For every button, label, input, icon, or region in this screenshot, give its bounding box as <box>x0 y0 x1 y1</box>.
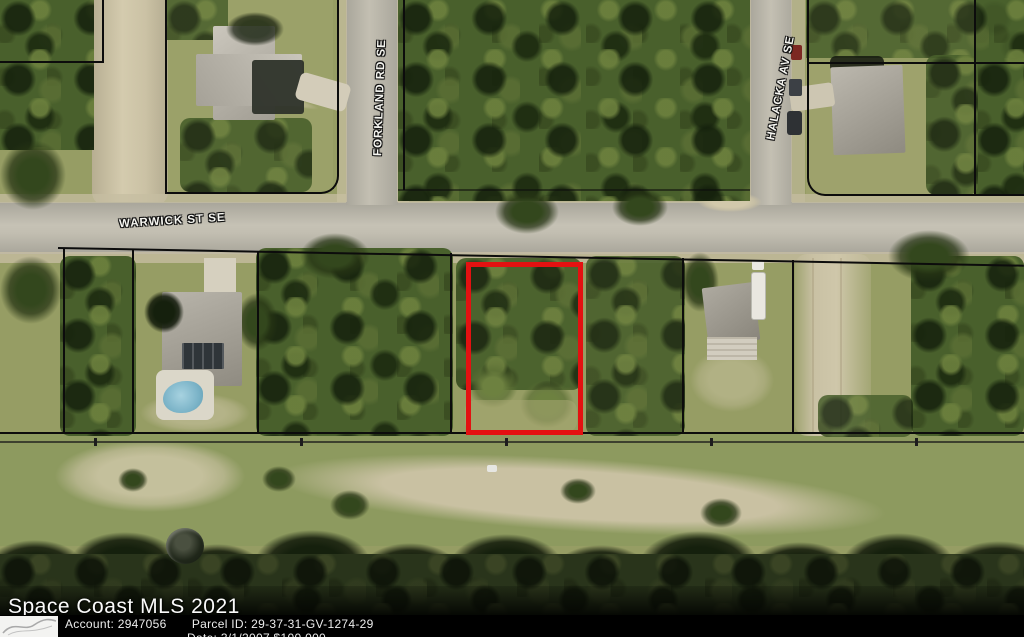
bush <box>262 466 296 492</box>
signature-logo <box>0 616 58 637</box>
tree-cluster <box>300 233 370 279</box>
subject-parcel-highlight <box>466 262 583 435</box>
account-label: Account: <box>65 617 114 631</box>
parcel-boundary-line <box>974 0 976 194</box>
bush <box>560 478 596 504</box>
parcel-boundary-line <box>0 61 103 63</box>
bush <box>330 490 370 520</box>
parked-car <box>787 111 802 135</box>
power-pole <box>94 438 97 446</box>
solar-panels <box>182 343 224 369</box>
driveway <box>204 258 236 294</box>
bush <box>700 498 742 528</box>
road-forkland-rd <box>346 0 398 205</box>
parcel-boundary-line <box>807 62 1024 64</box>
parcel-boundary <box>165 0 339 194</box>
tree-canopy <box>256 248 453 436</box>
tree-canopy <box>0 0 94 150</box>
tree-cluster <box>612 188 668 226</box>
signature-squiggle <box>0 616 58 637</box>
info-bar: Account: 2947056 Parcel ID: 29-37-31-GV-… <box>0 615 1024 637</box>
power-pole <box>300 438 303 446</box>
patio <box>707 337 757 360</box>
tree-cluster <box>888 230 970 282</box>
tree-canopy <box>911 256 1024 436</box>
parcel-boundary-line <box>63 249 65 434</box>
parcel-boundary-line <box>398 189 750 191</box>
parcel-boundary-line <box>132 249 134 434</box>
bush <box>118 468 148 492</box>
aerial-map: WARWICK ST SE FORKLAND RD SE HALACKA AV … <box>0 0 1024 637</box>
tree-canopy <box>398 0 750 201</box>
parcel-id-label: Parcel ID: <box>192 617 248 631</box>
parked-rv <box>751 272 766 320</box>
parcel-boundary-line <box>792 260 794 434</box>
tree-cluster <box>0 256 62 324</box>
tree-canopy <box>60 256 136 436</box>
parcel-boundary <box>807 0 1024 196</box>
account-value: 2947056 <box>118 617 167 631</box>
parcel-boundary-line <box>682 258 684 434</box>
power-pole <box>505 438 508 446</box>
tree-cluster <box>495 190 559 234</box>
tree-canopy <box>818 395 913 437</box>
bare-patch <box>55 440 245 512</box>
white-object <box>487 465 497 472</box>
tree-canopy <box>586 256 685 436</box>
parcel-boundary-line <box>257 251 259 434</box>
parcel-boundary-line <box>102 0 104 63</box>
tree-cluster <box>144 291 184 333</box>
parked-car <box>789 79 802 96</box>
power-pole <box>915 438 918 446</box>
power-pole <box>710 438 713 446</box>
parcel-id-value: 29-37-31-GV-1274-29 <box>251 617 373 631</box>
power-line <box>0 441 1024 443</box>
partial-date-line: Date: 3/1/2007 $100,000 <box>187 631 326 637</box>
round-pond <box>166 528 204 564</box>
account-parcel-line: Account: 2947056 Parcel ID: 29-37-31-GV-… <box>65 617 374 631</box>
parcel-boundary-line <box>403 0 405 190</box>
parcel-boundary-line <box>450 253 452 434</box>
tree-cluster <box>0 140 66 210</box>
